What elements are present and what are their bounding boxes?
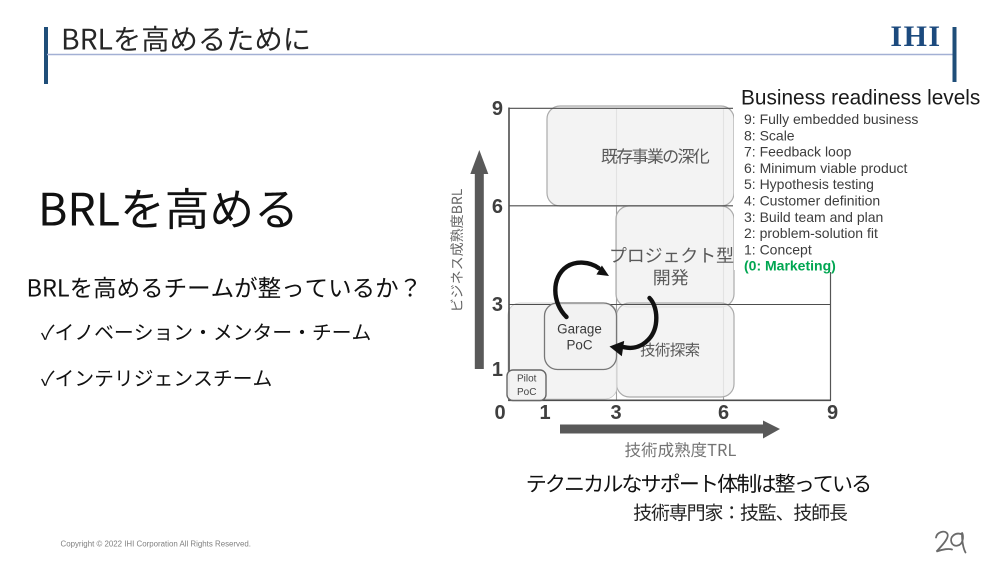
svg-text:1: Concept: 1: Concept (744, 241, 812, 257)
svg-text:Pilot: Pilot (517, 374, 537, 385)
svg-text:3: Build team and plan: 3: Build team and plan (744, 209, 883, 225)
svg-text:PoC: PoC (566, 337, 592, 352)
svg-text:6: Minimum viable product: 6: Minimum viable product (744, 160, 908, 176)
svg-text:8: Scale: 8: Scale (744, 127, 795, 143)
svg-text:2: problem-solution fit: 2: problem-solution fit (744, 225, 878, 241)
svg-text:(0: Marketing): (0: Marketing) (744, 258, 836, 274)
svg-text:Copyright © 2022 IHI Corporati: Copyright © 2022 IHI Corporation All Rig… (61, 540, 251, 549)
svg-text:6: 6 (718, 402, 729, 424)
svg-text:9: 9 (827, 402, 838, 424)
svg-text:IHI: IHI (890, 20, 941, 53)
svg-text:3: 3 (610, 402, 621, 424)
svg-text:Garage: Garage (557, 321, 602, 336)
svg-text:1: 1 (539, 402, 550, 424)
svg-text:6: 6 (492, 196, 503, 218)
svg-text:9: Fully embedded business: 9: Fully embedded business (744, 111, 918, 127)
svg-text:7: Feedback loop: 7: Feedback loop (744, 144, 852, 160)
svg-text:5: Hypothesis testing: 5: Hypothesis testing (744, 176, 874, 192)
svg-text:0: 0 (494, 402, 505, 424)
svg-text:1: 1 (492, 359, 503, 381)
svg-text:Business readiness levels: Business readiness levels (741, 87, 980, 110)
svg-text:4: Customer definition: 4: Customer definition (744, 193, 880, 209)
svg-text:3: 3 (492, 294, 503, 316)
svg-text:PoC: PoC (517, 387, 536, 398)
svg-text:9: 9 (492, 98, 503, 120)
